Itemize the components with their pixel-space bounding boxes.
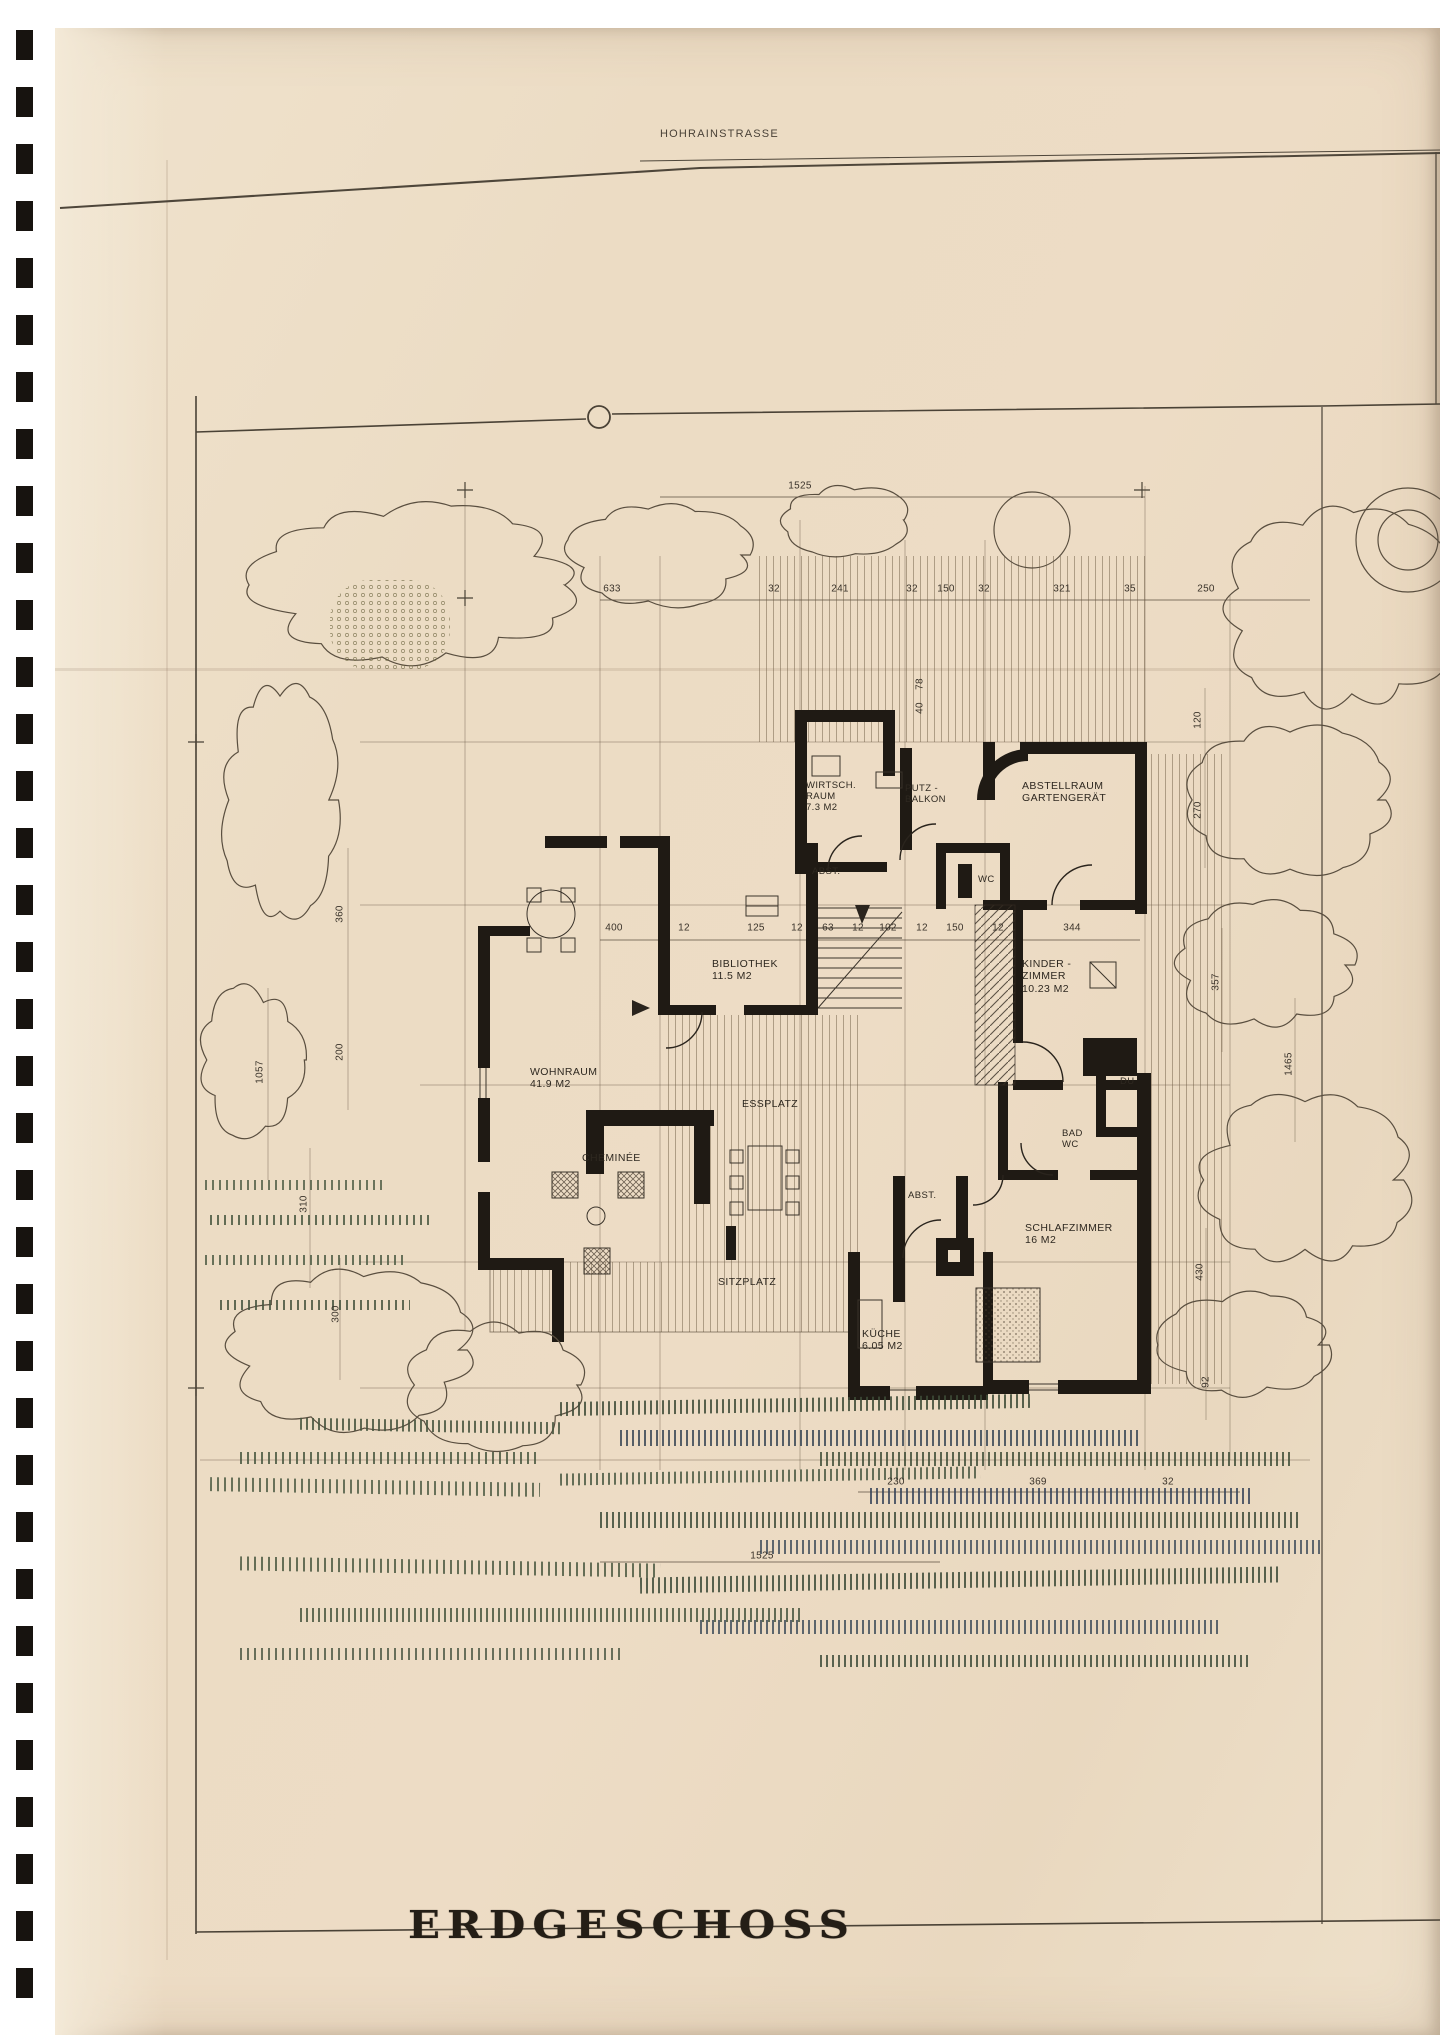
dim-344: 344 [1063,923,1081,934]
dim-310: 310 [299,1195,310,1213]
room-label-abstellraum: ABSTELLRAUM GARTENGERÄT [1022,780,1106,805]
dim-92: 92 [1201,1376,1212,1388]
dim-12c: 12 [852,923,864,934]
room-label-essplatz: ESSPLATZ [742,1098,798,1110]
dim-32d: 32 [1162,1477,1174,1488]
dim-150b: 150 [946,923,964,934]
room-label-bibliothek: BIBLIOTHEK 11.5 M2 [712,958,778,983]
dim-63: 63 [822,923,834,934]
plan-title: ERDGESCHOSS [408,1902,856,1947]
dim-1057: 1057 [255,1060,266,1083]
dim-12a: 12 [678,923,690,934]
dim-12d: 12 [916,923,928,934]
room-label-cheminee: CHEMINÉE [582,1152,641,1164]
room-label-wc: WC [978,874,995,885]
room-label-kinderzimmer: KINDER - ZIMMER 10.23 M2 [1022,958,1071,995]
room-label-du: DU [1120,1076,1135,1087]
dim-430: 430 [1195,1263,1206,1281]
street-lines [60,150,1440,208]
dim-top-total: 1525 [788,481,811,492]
dim-321: 321 [1053,584,1071,595]
street-name-label: HOHRAINSTRASSE [660,128,779,140]
scanned-floor-plan-page: HOHRAINSTRASSE WIRTSCH. RAUM 7.3 M2 PUTZ… [0,0,1440,2035]
room-label-kueche: KÜCHE 6.05 M2 [862,1328,903,1353]
room-label-abst-upper: ABST. [812,866,840,877]
dim-150a: 150 [937,584,955,595]
dim-300: 300 [331,1305,342,1323]
dim-357: 357 [1211,973,1222,991]
entry-direction-arrow [632,1000,650,1016]
dim-78: 78 [915,678,926,690]
room-label-wohnraum: WOHNRAUM 41.9 M2 [530,1066,597,1091]
dim-120: 120 [1193,711,1204,729]
stair-direction-arrow [855,905,870,924]
room-label-abst-lower: ABST. [908,1190,936,1201]
dim-1465: 1465 [1284,1052,1295,1075]
dim-400: 400 [605,923,623,934]
dim-633: 633 [603,584,621,595]
dim-270: 270 [1193,801,1204,819]
room-label-sitzplatz: SITZPLATZ [718,1276,776,1288]
room-label-bad-wc: BAD WC [1062,1128,1083,1150]
dim-241: 241 [831,584,849,595]
flue-opening [948,1250,960,1262]
dim-125: 125 [747,923,765,934]
dim-230: 230 [887,1477,905,1488]
dim-bottom-total: 1525 [750,1551,773,1562]
dim-32b: 32 [906,584,918,595]
survey-point-marker [588,406,610,428]
dim-35: 35 [1124,584,1136,595]
dim-12b: 12 [791,923,803,934]
dim-40: 40 [915,702,926,714]
dim-250: 250 [1197,584,1215,595]
dim-200: 200 [335,1043,346,1061]
room-label-putz-balkon: PUTZ - BALKON [905,783,946,805]
dim-32c: 32 [978,584,990,595]
room-label-wirtschaftsraum: WIRTSCH. RAUM 7.3 M2 [806,780,856,814]
dim-12e: 12 [992,923,1004,934]
plan-linework [0,0,1440,2035]
room-label-schlafzimmer: SCHLAFZIMMER 16 M2 [1025,1222,1113,1247]
dim-102: 102 [879,923,897,934]
dim-369: 369 [1029,1477,1047,1488]
dim-360: 360 [335,905,346,923]
dim-32a: 32 [768,584,780,595]
dotted-shrub-cluster [330,580,450,670]
